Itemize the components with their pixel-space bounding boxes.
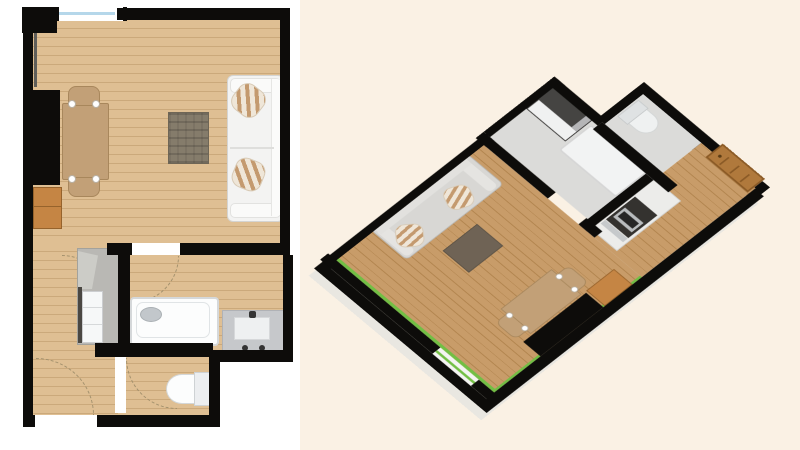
bathtub[interactable] — [130, 297, 219, 346]
wall-wc-right[interactable] — [209, 357, 220, 427]
wall-right[interactable] — [280, 8, 290, 255]
wall-left-mass[interactable] — [33, 90, 60, 185]
wall-sink-bottom[interactable] — [213, 350, 293, 362]
faucet — [249, 311, 256, 318]
wall-living-bottom-right[interactable] — [180, 243, 290, 255]
kitchen-unit[interactable] — [77, 248, 120, 345]
door-panel-line — [739, 174, 750, 182]
wc-door-opening[interactable] — [115, 357, 126, 413]
floor-plan-2d-view — [0, 0, 300, 450]
wall-hall-bath[interactable] — [118, 243, 130, 343]
throw-pillow-3d — [394, 223, 425, 248]
3d-plan-rotated-scene — [320, 43, 770, 404]
wall-sink-right[interactable] — [283, 255, 293, 362]
storage-cabinet[interactable] — [33, 187, 62, 229]
living-door-opening[interactable] — [132, 244, 180, 254]
wall-bottom-left[interactable] — [23, 415, 35, 427]
area-rug[interactable] — [168, 112, 209, 164]
kitchen-counter — [78, 251, 98, 289]
wall-top[interactable] — [117, 8, 290, 20]
window-glass — [59, 12, 115, 15]
dining-chair[interactable] — [68, 177, 100, 197]
entry-door-opening[interactable] — [35, 417, 97, 425]
dining-table[interactable] — [62, 103, 109, 180]
wall-bottom-right[interactable] — [97, 415, 210, 427]
wall-left[interactable] — [23, 8, 33, 427]
refrigerator — [82, 291, 103, 343]
sink-vanity[interactable] — [222, 310, 285, 354]
floor-plan-3d-view[interactable] — [300, 0, 800, 450]
bathtub-drain — [140, 307, 162, 322]
door-panel-line — [729, 165, 740, 173]
wall-shadow — [34, 25, 37, 87]
door-knob — [717, 154, 722, 158]
door-panel-line — [719, 157, 730, 165]
dining-chair[interactable] — [68, 86, 100, 106]
vanity-basin — [234, 317, 270, 340]
sofa-seam — [230, 147, 274, 149]
kitchen-unit-edge — [78, 287, 82, 343]
wall-bath-bottom[interactable] — [95, 343, 213, 357]
